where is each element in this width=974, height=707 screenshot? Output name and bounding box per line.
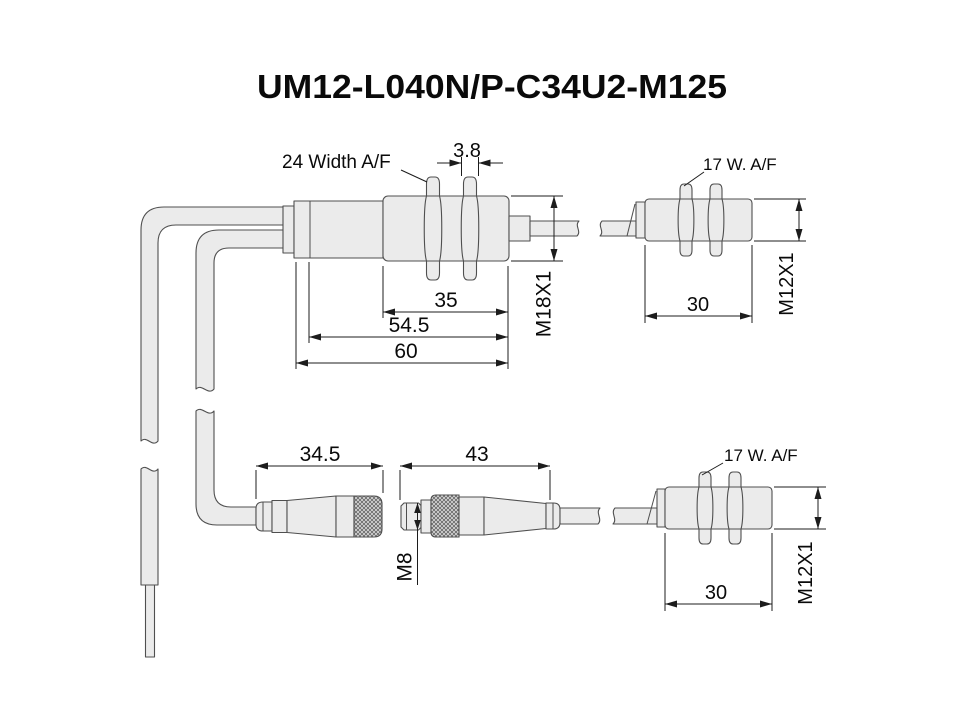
- main-sensor-connector-stub: [509, 216, 530, 241]
- male-length-value: 43: [465, 443, 488, 466]
- total-length-value: 60: [394, 340, 417, 363]
- connector-female-knurl: [354, 496, 382, 537]
- hex-nut: [727, 472, 743, 544]
- connector-female-sleeve: [336, 496, 354, 537]
- thread-length-value: 35: [434, 289, 457, 312]
- main-sensor-threaded-barrel: [383, 196, 509, 261]
- cable-outer-lower-run: [141, 467, 158, 585]
- connector-female-taper: [287, 496, 336, 537]
- hex-nut: [708, 184, 724, 256]
- hex-nut: [424, 177, 442, 280]
- thread-spec-label: M12X1: [795, 541, 817, 604]
- technical-drawing-page: 3.8 35 54.5 60 M18X1 24 Width A/F 30: [0, 0, 974, 707]
- remote-sensor-top-endcap: [636, 202, 645, 238]
- remote-sensor-bottom-endcap: [657, 489, 665, 527]
- connector-male-washer: [421, 500, 431, 533]
- hex-nut: [461, 177, 479, 280]
- connector-male-body: [459, 497, 484, 535]
- thread-spec-label: M12X1: [776, 252, 798, 315]
- remote-sensor-top-body: [645, 199, 752, 241]
- page-title: UM12-L040N/P-C34U2-M125: [257, 68, 727, 105]
- connector-female-collar: [256, 502, 272, 531]
- body-length-value: 54.5: [389, 314, 430, 337]
- connector-male-taper: [484, 497, 546, 535]
- connector-male-knurl: [431, 495, 459, 537]
- remote-length-value: 30: [705, 582, 727, 604]
- female-length-value: 34.5: [300, 443, 341, 466]
- thread-spec-label: M8: [394, 552, 417, 581]
- dimension-diagram: 3.8 35 54.5 60 M18X1 24 Width A/F 30: [0, 0, 974, 707]
- hex-nut: [678, 184, 694, 256]
- remote-sensor-bottom-body: [665, 487, 772, 529]
- hex-nut-label: 17 W. A/F: [703, 155, 777, 174]
- thread-spec-label: M18X1: [533, 271, 556, 338]
- main-sensor-rear-collar: [283, 206, 294, 253]
- cable-outer-wire-end: [146, 585, 155, 657]
- main-sensor-rear-body: [294, 201, 383, 258]
- nut-thickness-value: 3.8: [453, 140, 481, 162]
- hex-nut-label: 17 W. A/F: [724, 446, 798, 465]
- connector-female: [256, 496, 382, 537]
- cable-segment: [560, 508, 600, 524]
- connector-female-neck: [272, 501, 287, 533]
- hex-nut-label: 24 Width A/F: [282, 152, 391, 173]
- hex-nut: [697, 472, 713, 544]
- remote-length-value: 30: [687, 294, 709, 316]
